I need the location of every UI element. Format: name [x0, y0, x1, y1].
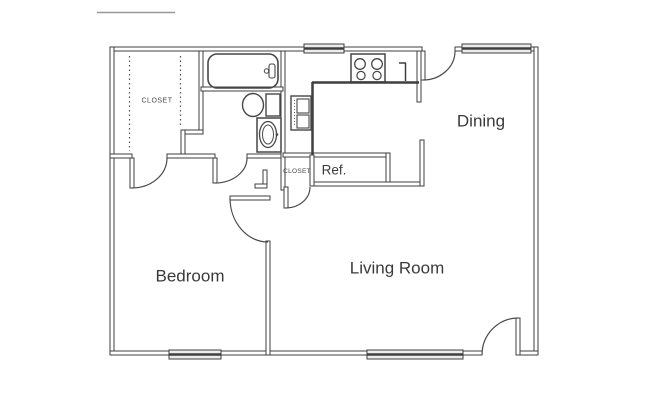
door-arc-entry — [482, 318, 518, 355]
floor-plan-canvas: Bedroom Living Room Dining Ref. CLOSET C… — [0, 0, 650, 408]
door-arc-living-room — [230, 198, 268, 242]
label-living-room: Living Room — [350, 260, 445, 277]
wall-stub-cap — [255, 184, 267, 188]
appliance-door — [297, 115, 309, 128]
door-swing-arcs — [132, 51, 518, 355]
wall-ref-bottom — [310, 182, 424, 186]
door-leaves — [130, 51, 520, 355]
wall-kitchen-dining-upper — [417, 51, 421, 102]
toilet-bowl — [243, 94, 264, 117]
sink-faucet-icon — [276, 133, 279, 136]
door-leaf-entry — [516, 318, 520, 355]
label-refrigerator: Ref. — [322, 163, 347, 177]
door-arc-dining-back-door — [423, 51, 455, 80]
wall-kitchen-dining-lower — [420, 140, 424, 186]
window-bedroom — [169, 350, 221, 359]
label-hall-closet: CLOSET — [283, 169, 311, 176]
burner-icon — [357, 71, 365, 79]
sink-basin-inner — [263, 125, 274, 144]
burner-icon — [372, 59, 383, 70]
door-arc-hall-closet — [286, 187, 310, 208]
tub-faucet-icon — [269, 64, 275, 78]
wall — [518, 351, 538, 355]
wall-bedroom-living-divider — [266, 241, 270, 355]
wall — [110, 47, 422, 51]
wall-bedroom-north — [167, 154, 215, 158]
label-dining: Dining — [457, 113, 505, 130]
tub-drain-icon — [264, 69, 268, 73]
window-dining — [462, 44, 531, 53]
door-leaf-hall-closet — [284, 187, 288, 208]
toilet — [243, 94, 281, 117]
burner-icon — [373, 71, 381, 79]
appliance-door — [297, 99, 309, 113]
wall-bath-south — [247, 154, 283, 158]
bathtub — [208, 54, 278, 88]
door-leaf-dining-back-door — [421, 51, 425, 80]
wall — [110, 47, 114, 355]
wall — [534, 47, 538, 355]
wall-bedroom-north — [110, 154, 132, 158]
toilet-tank — [266, 94, 280, 116]
door-arc-walkin-closet — [132, 158, 167, 188]
window-living-room — [367, 350, 463, 359]
wall-ref-top — [283, 153, 390, 157]
wall-closet-right — [199, 51, 203, 134]
wall-hall-south — [230, 196, 270, 200]
wall-ref-right — [386, 153, 390, 186]
door-leaf-bathroom — [213, 158, 217, 183]
label-bedroom: Bedroom — [156, 268, 225, 285]
stacked-appliance — [291, 96, 311, 130]
exterior-walls — [110, 47, 538, 355]
bathroom-fixtures — [208, 54, 281, 152]
door-leaf-walkin-closet — [130, 158, 134, 188]
door-arc-bathroom — [215, 158, 247, 183]
kitchen-fixtures — [291, 54, 419, 155]
label-walkin-closet: CLOSET — [141, 98, 172, 105]
window-kitchen — [304, 44, 344, 53]
sink-vanity — [257, 118, 281, 152]
floor-plan-drawing — [0, 0, 650, 408]
burner-icon — [355, 59, 366, 70]
stove-cooktop — [351, 54, 385, 82]
